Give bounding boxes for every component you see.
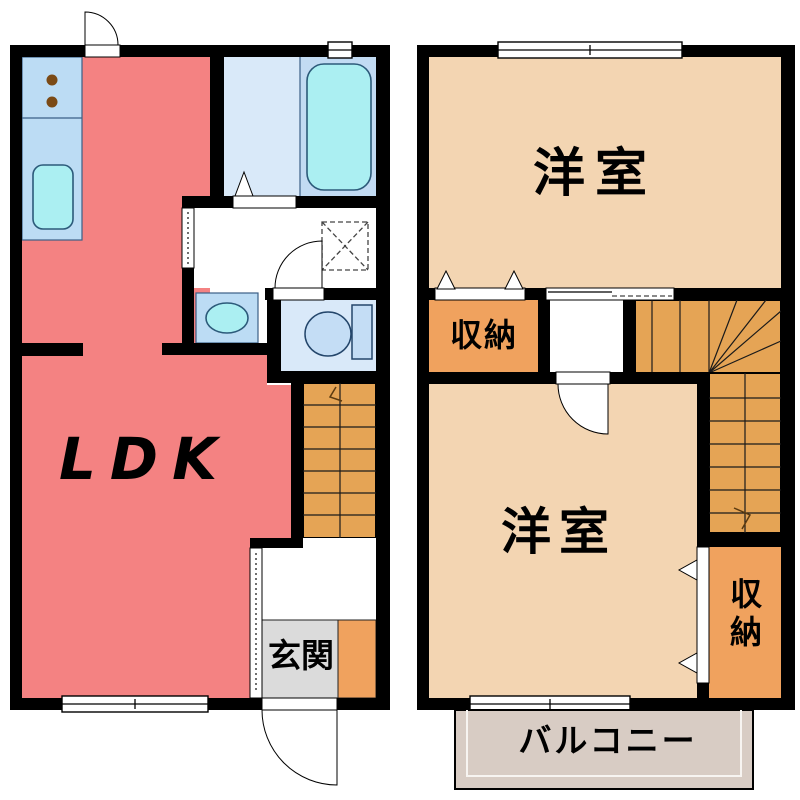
wall xyxy=(417,45,429,710)
wall xyxy=(267,300,281,371)
wall xyxy=(210,57,224,196)
bedroom-upper-label: 洋室 xyxy=(485,148,705,200)
bedroom-upper-sliding-door xyxy=(546,288,674,300)
wall xyxy=(291,371,303,538)
kitchen-sink xyxy=(33,165,73,229)
closet-upper-opening xyxy=(435,288,525,300)
wall xyxy=(250,538,303,548)
closet-upper-label: 収納 xyxy=(424,319,544,351)
wall xyxy=(697,683,709,698)
entrance-door-opening xyxy=(262,698,337,710)
bathroom-door-opening xyxy=(233,196,296,208)
washroom-door-opening xyxy=(273,288,324,300)
wall xyxy=(781,45,795,710)
wall xyxy=(697,373,709,533)
entrance-door-swing xyxy=(262,710,337,785)
wall xyxy=(17,343,83,356)
closet-lower-label: 収納 xyxy=(728,577,760,653)
floor-plan-drawing xyxy=(0,0,800,800)
genkan-label: 玄関 xyxy=(256,639,346,672)
bedroom-lower-door-opening xyxy=(556,372,610,384)
bedroom-lower-label: 洋室 xyxy=(449,507,669,557)
hall-floor xyxy=(262,538,376,620)
stairs-2f-upper xyxy=(635,300,781,373)
balcony-label: バルコニー xyxy=(458,724,758,757)
toilet-bowl xyxy=(305,312,351,356)
bathtub xyxy=(307,64,371,190)
wall xyxy=(10,45,22,710)
staircase-1f xyxy=(303,383,376,538)
back-door-swing xyxy=(85,12,118,45)
wall xyxy=(697,533,781,547)
hall-2f-floor xyxy=(550,300,623,372)
toilet-tank xyxy=(352,305,372,359)
back-door-opening xyxy=(85,45,120,57)
wall xyxy=(267,371,376,383)
stove-burner-icon xyxy=(47,97,58,108)
wall xyxy=(162,343,270,355)
wall xyxy=(182,268,194,345)
closet-lower-door xyxy=(697,547,709,683)
floor-plan: LDK 玄関 洋室 洋室 収納 収納 バルコニー xyxy=(0,0,800,800)
washbasin-sink xyxy=(206,303,248,333)
ldk-floor xyxy=(22,545,252,698)
ldk-label: LDK xyxy=(55,430,235,488)
stove-burner-icon xyxy=(47,75,58,86)
wall xyxy=(376,45,390,710)
wall xyxy=(623,300,635,372)
